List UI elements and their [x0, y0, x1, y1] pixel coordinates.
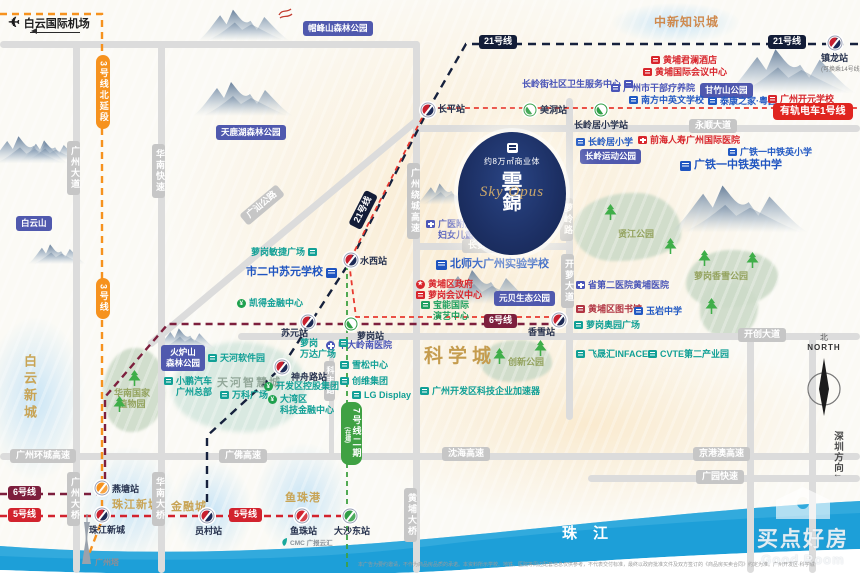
- poi-icon: [728, 148, 737, 156]
- poi-item: 万科广场: [220, 390, 268, 401]
- plane-icon: ✈: [8, 14, 20, 31]
- station-logo-icon: [345, 318, 358, 331]
- poi-item: 广州市干部疗养院: [611, 83, 695, 94]
- metro-line-badge: 6号线: [8, 486, 41, 500]
- station-logo-icon: [828, 36, 843, 51]
- metro-line-badge: 有轨电车1号线: [773, 103, 853, 120]
- poi-item: 广铁一中铁英小学: [728, 147, 812, 158]
- poi-icon: [426, 220, 435, 228]
- district-label: 鱼珠港: [285, 489, 321, 505]
- poi-icon: [340, 361, 349, 369]
- poi-icon: [651, 56, 660, 64]
- park-badge: 天鹿湖森林公园: [216, 125, 286, 140]
- district-label: 中新知识城: [654, 13, 719, 30]
- station-logo-icon: [343, 509, 358, 524]
- station-label: 燕塘站: [112, 482, 139, 495]
- poi-item: 黄埔区图书馆: [576, 304, 642, 315]
- poi-icon: [264, 382, 273, 391]
- station-label: 鱼珠站: [290, 524, 317, 537]
- poi-icon: [576, 350, 585, 358]
- compass-north-en: NORTH: [800, 343, 848, 352]
- road-name-badge: 沈海高速: [442, 447, 490, 461]
- station-label: 水西站: [360, 254, 387, 267]
- station-label: 苏元站: [281, 326, 308, 339]
- road-name-badge: 永顺大道: [689, 119, 737, 133]
- region-blob: [573, 193, 681, 261]
- station-label: 镇龙站(可换乘14号线): [821, 51, 860, 73]
- poi-item: 飞晟汇INFACE: [576, 349, 648, 360]
- poi-icon: [576, 281, 585, 289]
- station-logo-icon: [344, 253, 359, 268]
- project-name-en: Sky Opus: [480, 184, 544, 201]
- river-label: 珠江: [562, 522, 624, 543]
- station-label: 神舟路站: [291, 370, 327, 383]
- cmc-mark: CMC 广报云汇: [280, 537, 333, 547]
- metro-line-badge: 7号线二期(在建): [341, 402, 362, 465]
- poi-item: 宝能国际演艺中心: [421, 300, 469, 322]
- poi-item: 市二中苏元学校: [246, 266, 337, 279]
- poi-item: 雪松中心: [340, 360, 388, 371]
- road-name-vertical: 广州绕城高速: [407, 163, 420, 239]
- project-commercial-area: 约8万㎡商业体: [484, 156, 540, 167]
- canton-tower-label: 广州塔: [95, 557, 119, 568]
- poi-icon: [420, 387, 429, 395]
- district-label: 科学城: [424, 341, 496, 368]
- poi-item: 大湾区科技金融中心: [268, 394, 334, 416]
- location-map: 珠江 永顺大道长贤路开创大道广州环城高速广佛高速沈海高速京港澳高速广园快速广汕公…: [0, 0, 860, 573]
- leaf-icon: [280, 537, 288, 547]
- poi-icon: [643, 68, 652, 76]
- station-logo-icon: [95, 481, 110, 496]
- poi-icon: [576, 138, 585, 146]
- district-label: 白云新城: [20, 354, 39, 422]
- poi-item: 萝岗万达广场: [300, 338, 348, 360]
- poi-icon: [680, 161, 691, 171]
- road-name-badge: 开创大道: [738, 328, 786, 342]
- poi-icon: [268, 395, 277, 404]
- park-badge: 白云山: [16, 216, 52, 231]
- house-logo-icon: [771, 484, 835, 520]
- poi-icon: [220, 391, 229, 399]
- station-label: 美洞站: [540, 103, 567, 116]
- metro-line-badge: 21号线: [768, 35, 806, 49]
- road-name-vertical: 深圳方向↓: [830, 426, 842, 484]
- road: [413, 125, 860, 132]
- poi-icon: [576, 305, 585, 313]
- poi-item: 玉岩中学: [634, 306, 682, 317]
- watermark: 买点好房 Good Room: [746, 484, 860, 567]
- poi-icon: [638, 136, 647, 144]
- poi-icon: [208, 354, 217, 362]
- road-name-badge: 广州环城高速: [10, 449, 76, 463]
- poi-icon: [436, 260, 447, 270]
- park-label: 贤江公园: [618, 229, 654, 240]
- poi-icon: [416, 280, 425, 289]
- poi-item: 广州开发区科技企业加速器: [420, 386, 540, 397]
- station-label: 珠江新城: [89, 523, 125, 536]
- station-label: 员村站: [195, 524, 222, 537]
- poi-icon: [648, 350, 657, 358]
- poi-item: 凯得金融中心: [237, 298, 303, 309]
- red-bird-stamp-icon: [277, 6, 293, 20]
- station-logo-icon: [595, 104, 608, 117]
- station-label: 大沙东站: [334, 524, 370, 537]
- watermark-cn: 买点好房: [746, 523, 860, 553]
- park-badge: 长岭运动公园: [580, 149, 641, 164]
- poi-icon: [164, 377, 173, 385]
- project-logo: 约8万㎡商业体 雲 Sky Opus 錦: [458, 132, 566, 255]
- metro-line-badge: 5号线: [8, 508, 41, 522]
- park-badge: 火炉山森林公园: [161, 345, 205, 371]
- compass-needle-icon: [801, 352, 847, 418]
- station-label: 香雪站: [528, 325, 555, 338]
- road-name-vertical: 华南大桥: [152, 472, 165, 526]
- station-label: 长平站: [438, 102, 465, 115]
- poi-item: 黄埔区政府: [416, 279, 473, 290]
- poi-item: 南方中英文学校: [629, 95, 704, 106]
- poi-item: 黄埔君澜酒店: [651, 55, 717, 66]
- poi-item: 萝岗奥园广场: [574, 320, 640, 331]
- poi-item: 小鹏汽车广州总部: [164, 376, 212, 398]
- poi-icon: [768, 95, 777, 103]
- poi-item: 黄埔国际会议中心: [643, 67, 727, 78]
- commercial-building-icon: [507, 143, 518, 153]
- road-name-vertical: 黄埔大桥: [404, 488, 417, 542]
- poi-item: 泰康之家·粤园: [708, 96, 777, 107]
- park-label: 创新公园: [508, 357, 544, 368]
- metro-line-badge: 3号线: [96, 278, 110, 319]
- station-logo-icon: [275, 360, 290, 375]
- poi-item: 萝岗敏捷广场: [251, 247, 317, 258]
- road: [0, 41, 420, 48]
- road-name-vertical: 华南快速: [152, 144, 165, 198]
- station-logo-icon: [524, 104, 537, 117]
- airport-direction-arrow: [30, 32, 80, 33]
- compass-north-cn: 北: [800, 332, 848, 343]
- station-logo-icon: [95, 508, 110, 523]
- poi-icon: [237, 299, 246, 308]
- poi-icon: [708, 97, 717, 105]
- poi-icon: [326, 268, 337, 278]
- poi-icon: [629, 96, 638, 104]
- metro-line-badge: 21号线: [479, 35, 517, 49]
- poi-icon: [340, 377, 349, 385]
- poi-icon: [634, 307, 643, 315]
- poi-icon: [611, 84, 620, 92]
- poi-icon: [421, 301, 430, 309]
- poi-icon: [339, 339, 348, 347]
- airport-label: ✈ 白云国际机场: [8, 14, 90, 31]
- road-name-vertical: 开萝大道: [561, 254, 574, 308]
- metro-line-badge: 6号线: [484, 314, 517, 328]
- compass: 北 NORTH: [800, 332, 848, 423]
- poi-item: CVTE第二产业园: [648, 349, 729, 360]
- station-label: 萝岗站: [357, 329, 384, 342]
- poi-item: 省第二医院黄埔医院: [576, 280, 669, 291]
- metro-line-badge: 3号线北延段: [96, 55, 110, 129]
- ink-mountain-icon: [0, 136, 68, 163]
- station-logo-icon: [200, 509, 215, 524]
- road-name-badge: 广佛高速: [219, 449, 267, 463]
- station-logo-icon: [295, 509, 310, 524]
- poi-icon: [574, 321, 583, 329]
- poi-icon: [416, 291, 425, 299]
- road-name-vertical: 广州大道: [67, 141, 80, 195]
- station-label: 长岭居小学站: [574, 118, 628, 131]
- poi-item: 天河软件园: [208, 353, 265, 364]
- poi-item: LG Display: [352, 390, 411, 401]
- poi-item: 北师大广州实验学校: [436, 258, 549, 271]
- poi-item: 创维集团: [340, 376, 388, 387]
- metro-line-badge: 5号线: [229, 508, 262, 522]
- poi-item: 广铁一中铁英中学: [680, 159, 782, 172]
- poi-icon: [352, 391, 361, 399]
- park-label: 萝岗香雪公园: [694, 271, 748, 282]
- park-badge: 帽峰山森林公园: [303, 21, 373, 36]
- poi-icon: [308, 248, 317, 256]
- poi-item: 前海人寿广州国际医院: [638, 135, 740, 146]
- road-name-badge: 京港澳高速: [693, 447, 750, 461]
- park-badge: 元贝生态公园: [494, 291, 555, 306]
- station-logo-icon: [421, 103, 436, 118]
- disclaimer-text: 本广告为要约邀请，不作为商品房品质的承诺。本资料所示学校、地铁、医院等周边配套信…: [358, 561, 856, 568]
- road-name-badge: 广园快速: [696, 470, 744, 484]
- poi-item: 长岭居小学: [576, 137, 633, 148]
